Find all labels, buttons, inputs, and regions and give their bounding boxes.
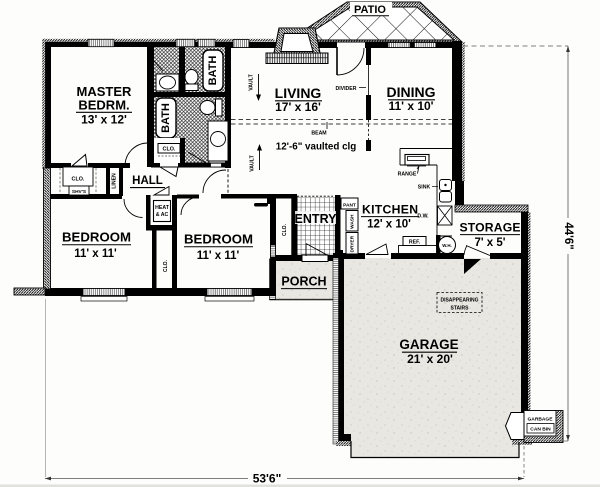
svg-text:PANT: PANT: [343, 202, 356, 208]
svg-text:SHV'S: SHV'S: [72, 189, 87, 195]
svg-text:21' x 20': 21' x 20': [407, 352, 453, 366]
svg-text:CLO.: CLO.: [163, 147, 176, 153]
svg-text:ENTRY: ENTRY: [295, 212, 338, 226]
svg-text:LIVING: LIVING: [275, 85, 322, 101]
svg-text:DRYER: DRYER: [350, 235, 356, 252]
svg-text:7' x 5': 7' x 5': [474, 237, 505, 249]
svg-text:GARBAGE: GARBAGE: [528, 417, 554, 423]
svg-text:11' x 11': 11' x 11': [74, 248, 117, 260]
svg-text:D.W.: D.W.: [417, 214, 429, 220]
svg-text:12'-6" vaulted clg: 12'-6" vaulted clg: [276, 142, 356, 153]
svg-text:VAULT: VAULT: [249, 73, 255, 90]
svg-text:STAIRS: STAIRS: [451, 306, 470, 312]
svg-text:BEDRM.: BEDRM.: [78, 98, 129, 113]
svg-text:CLO.: CLO.: [72, 177, 85, 183]
svg-text:CLO.: CLO.: [163, 259, 169, 272]
svg-text:HEAT: HEAT: [155, 205, 170, 211]
svg-text:DISAPPEARING: DISAPPEARING: [440, 298, 478, 304]
svg-text:11' x 10': 11' x 10': [388, 99, 433, 113]
svg-text:REF.: REF.: [409, 240, 421, 246]
svg-text:44'6": 44'6": [562, 222, 574, 249]
svg-text:11' x 11': 11' x 11': [197, 250, 240, 262]
svg-text:BATH: BATH: [207, 56, 219, 86]
svg-text:& AC: & AC: [156, 212, 169, 218]
svg-text:STORAGE: STORAGE: [460, 221, 521, 235]
svg-text:BEDROOM: BEDROOM: [62, 230, 131, 245]
svg-text:HALL: HALL: [132, 175, 163, 187]
svg-text:SINK: SINK: [418, 185, 431, 191]
svg-text:PATIO: PATIO: [354, 4, 386, 16]
svg-text:KITCHEN: KITCHEN: [362, 203, 418, 217]
svg-text:DIVIDER: DIVIDER: [335, 86, 356, 92]
svg-text:RANGE: RANGE: [398, 172, 417, 178]
svg-text:BEAM: BEAM: [311, 131, 326, 137]
svg-text:12' x 10': 12' x 10': [367, 219, 411, 231]
svg-text:LINEN: LINEN: [112, 173, 118, 189]
svg-text:W.H.: W.H.: [442, 243, 452, 248]
svg-text:VAULT: VAULT: [250, 154, 256, 171]
svg-text:DINING: DINING: [387, 84, 436, 100]
svg-text:53'6": 53'6": [253, 472, 282, 486]
svg-text:BATH: BATH: [160, 103, 172, 133]
svg-text:PORCH: PORCH: [281, 275, 326, 289]
svg-text:17' x 16': 17' x 16': [275, 100, 321, 114]
svg-text:CLO.: CLO.: [282, 223, 288, 236]
svg-text:GARAGE: GARAGE: [399, 337, 458, 352]
svg-text:WASH: WASH: [350, 214, 356, 229]
svg-text:BEDROOM: BEDROOM: [184, 232, 253, 247]
svg-text:13' x 12': 13' x 12': [81, 113, 127, 127]
svg-text:CAN BIN: CAN BIN: [530, 427, 551, 433]
